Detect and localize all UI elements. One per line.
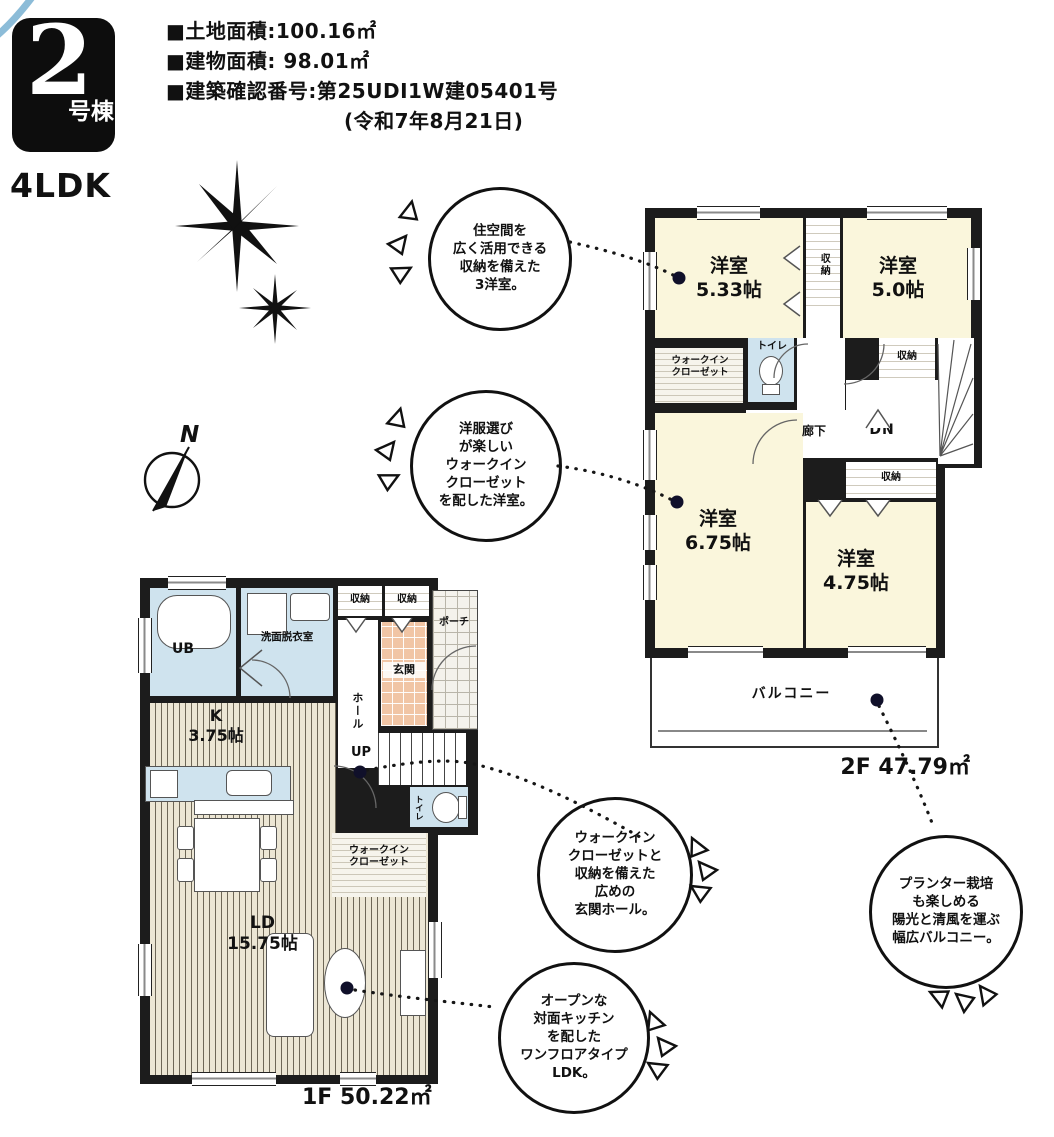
window	[967, 248, 981, 300]
room-name: K	[210, 706, 222, 725]
room-label-toilet-1f: トイレ	[411, 789, 425, 827]
land-area: ■土地面積:100.16㎡	[166, 16, 726, 46]
hall-2f-east	[846, 380, 938, 458]
chair-icon	[260, 858, 277, 882]
window	[867, 206, 947, 220]
tv-board-icon	[400, 950, 426, 1016]
toilet-tank-icon	[458, 796, 467, 819]
window	[697, 206, 760, 220]
compass-icon	[125, 425, 225, 525]
room-2f-stairs	[938, 338, 974, 464]
window	[643, 430, 657, 480]
chair-icon	[177, 858, 194, 882]
window	[168, 576, 226, 590]
room-label-toilet-2f: トイレ	[750, 341, 794, 354]
room-name: LD	[250, 913, 275, 933]
building-area: ■建物面積: 98.01㎡	[166, 46, 726, 76]
room-size: 4.75帖	[823, 572, 889, 594]
room-label-closet-b: 収納	[385, 593, 429, 607]
room-label-living: LD15.75帖	[205, 906, 320, 962]
room-label-bedroom-675: 洋室6.75帖	[658, 503, 778, 561]
window	[138, 944, 152, 996]
stairs-up-label: UP	[344, 745, 378, 761]
stairs-down-label: DN	[862, 423, 902, 439]
floor2-area-label: 2F 47.79㎡	[770, 754, 970, 782]
room-size: 15.75帖	[227, 934, 298, 954]
room-label-closet-a: 収納	[338, 593, 382, 607]
room-1f-stairs	[378, 733, 466, 785]
callout-three-bedrooms: 住空間を 広く活用できる 収納を備えた 3洋室。	[428, 187, 572, 331]
confirmation-date: (令和7年8月21日)	[344, 106, 726, 136]
chair-icon	[177, 826, 194, 850]
chair-icon	[260, 826, 277, 850]
callout-text: プランター栽培 も楽しめる 陽光と清風を運ぶ 幅広バルコニー。	[892, 876, 1000, 947]
callout-text: 洋服選び が楽しい ウォークイン クローゼット を配した洋室。	[439, 421, 534, 510]
property-info: ■土地面積:100.16㎡ ■建物面積: 98.01㎡ ■建築確認番号:第25U…	[166, 16, 726, 136]
room-name: 洋室	[710, 255, 748, 277]
room-label-porch: ポーチ	[432, 616, 476, 630]
window	[428, 922, 442, 978]
floorplan-flyer: 2 号棟 4LDK ■土地面積:100.16㎡ ■建物面積: 98.01㎡ ■建…	[0, 0, 1054, 1137]
callout-wic-bedroom: 洋服選び が楽しい ウォークイン クローゼット を配した洋室。	[410, 390, 562, 542]
room-size: 6.75帖	[685, 532, 751, 554]
window	[643, 252, 657, 310]
toilet-tank-icon	[762, 384, 780, 395]
callout-wide-balcony: プランター栽培 も楽しめる 陽光と清風を運ぶ 幅広バルコニー。	[869, 835, 1023, 989]
confirmation-number: ■建築確認番号:第25UDI1W建05401号	[166, 76, 726, 106]
room-label-bath: UB	[158, 640, 208, 660]
window	[643, 565, 657, 600]
room-label-closet-top-2f: 収納	[810, 232, 836, 298]
callout-text: オープンな 対面キッチン を配した ワンフロアタイプ LDK。	[520, 993, 628, 1082]
room-label-bedroom-475: 洋室4.75帖	[796, 543, 916, 601]
porch	[432, 590, 478, 730]
toilet-bowl-icon	[432, 792, 460, 823]
vanity-sink-icon	[290, 593, 330, 621]
floor1-area-label: 1F 50.22㎡	[302, 1084, 472, 1112]
compass-north-label: N	[180, 422, 199, 448]
room-label-bedroom-50: 洋室5.0帖	[838, 250, 958, 308]
room-label-washroom: 洗面脱衣室	[241, 630, 333, 646]
layout-type: 4LDK	[10, 166, 111, 205]
corner-arc-decoration	[0, 0, 50, 50]
room-label-hall: ホール	[346, 680, 368, 742]
room-label-bedroom-533: 洋室5.33帖	[669, 250, 789, 308]
callout-text: ウォークイン クローゼットと 収納を備えた 広めの 玄関ホール。	[568, 830, 663, 919]
room-label-wic-1f: ウォークイン クローゼット	[334, 842, 424, 872]
counter-ledge	[194, 800, 294, 815]
room-size: 3.75帖	[188, 726, 243, 745]
room-label-hallway-2f: 廊下	[792, 424, 836, 439]
doorway	[806, 310, 840, 340]
callout-text: 住空間を 広く活用できる 収納を備えた 3洋室。	[453, 223, 547, 294]
callout-one-floor-ldk: オープンな 対面キッチン を配した ワンフロアタイプ LDK。	[498, 962, 650, 1114]
stove-icon	[150, 770, 178, 798]
unit-suffix: 号棟	[68, 92, 114, 126]
window	[643, 515, 657, 550]
sink-icon	[226, 770, 272, 796]
room-label-entrance: 玄関	[383, 662, 425, 678]
window	[138, 618, 152, 673]
room-name: 洋室	[879, 255, 917, 277]
coffee-table-icon	[324, 948, 366, 1018]
room-name: 洋室	[837, 548, 875, 570]
room-label-closet-low-2f: 収納	[846, 471, 936, 485]
washing-machine-icon	[247, 593, 287, 635]
window	[192, 1072, 276, 1086]
balcony-inner-line	[658, 730, 927, 732]
room-label-closet-mid-2f: 収納	[879, 350, 935, 364]
dining-table-icon	[194, 818, 260, 892]
callout-entrance-hall: ウォークイン クローゼットと 収納を備えた 広めの 玄関ホール。	[537, 797, 693, 953]
toilet-bowl-icon	[759, 356, 783, 386]
room-label-wic-2f: ウォークイン クローゼット	[657, 352, 743, 382]
sparkle-decoration	[175, 158, 325, 348]
room-label-balcony: バルコニー	[648, 686, 935, 704]
room-size: 5.0帖	[872, 279, 925, 301]
room-size: 5.33帖	[696, 279, 762, 301]
room-label-kitchen: K3.75帖	[168, 700, 264, 752]
room-name: 洋室	[699, 508, 737, 530]
